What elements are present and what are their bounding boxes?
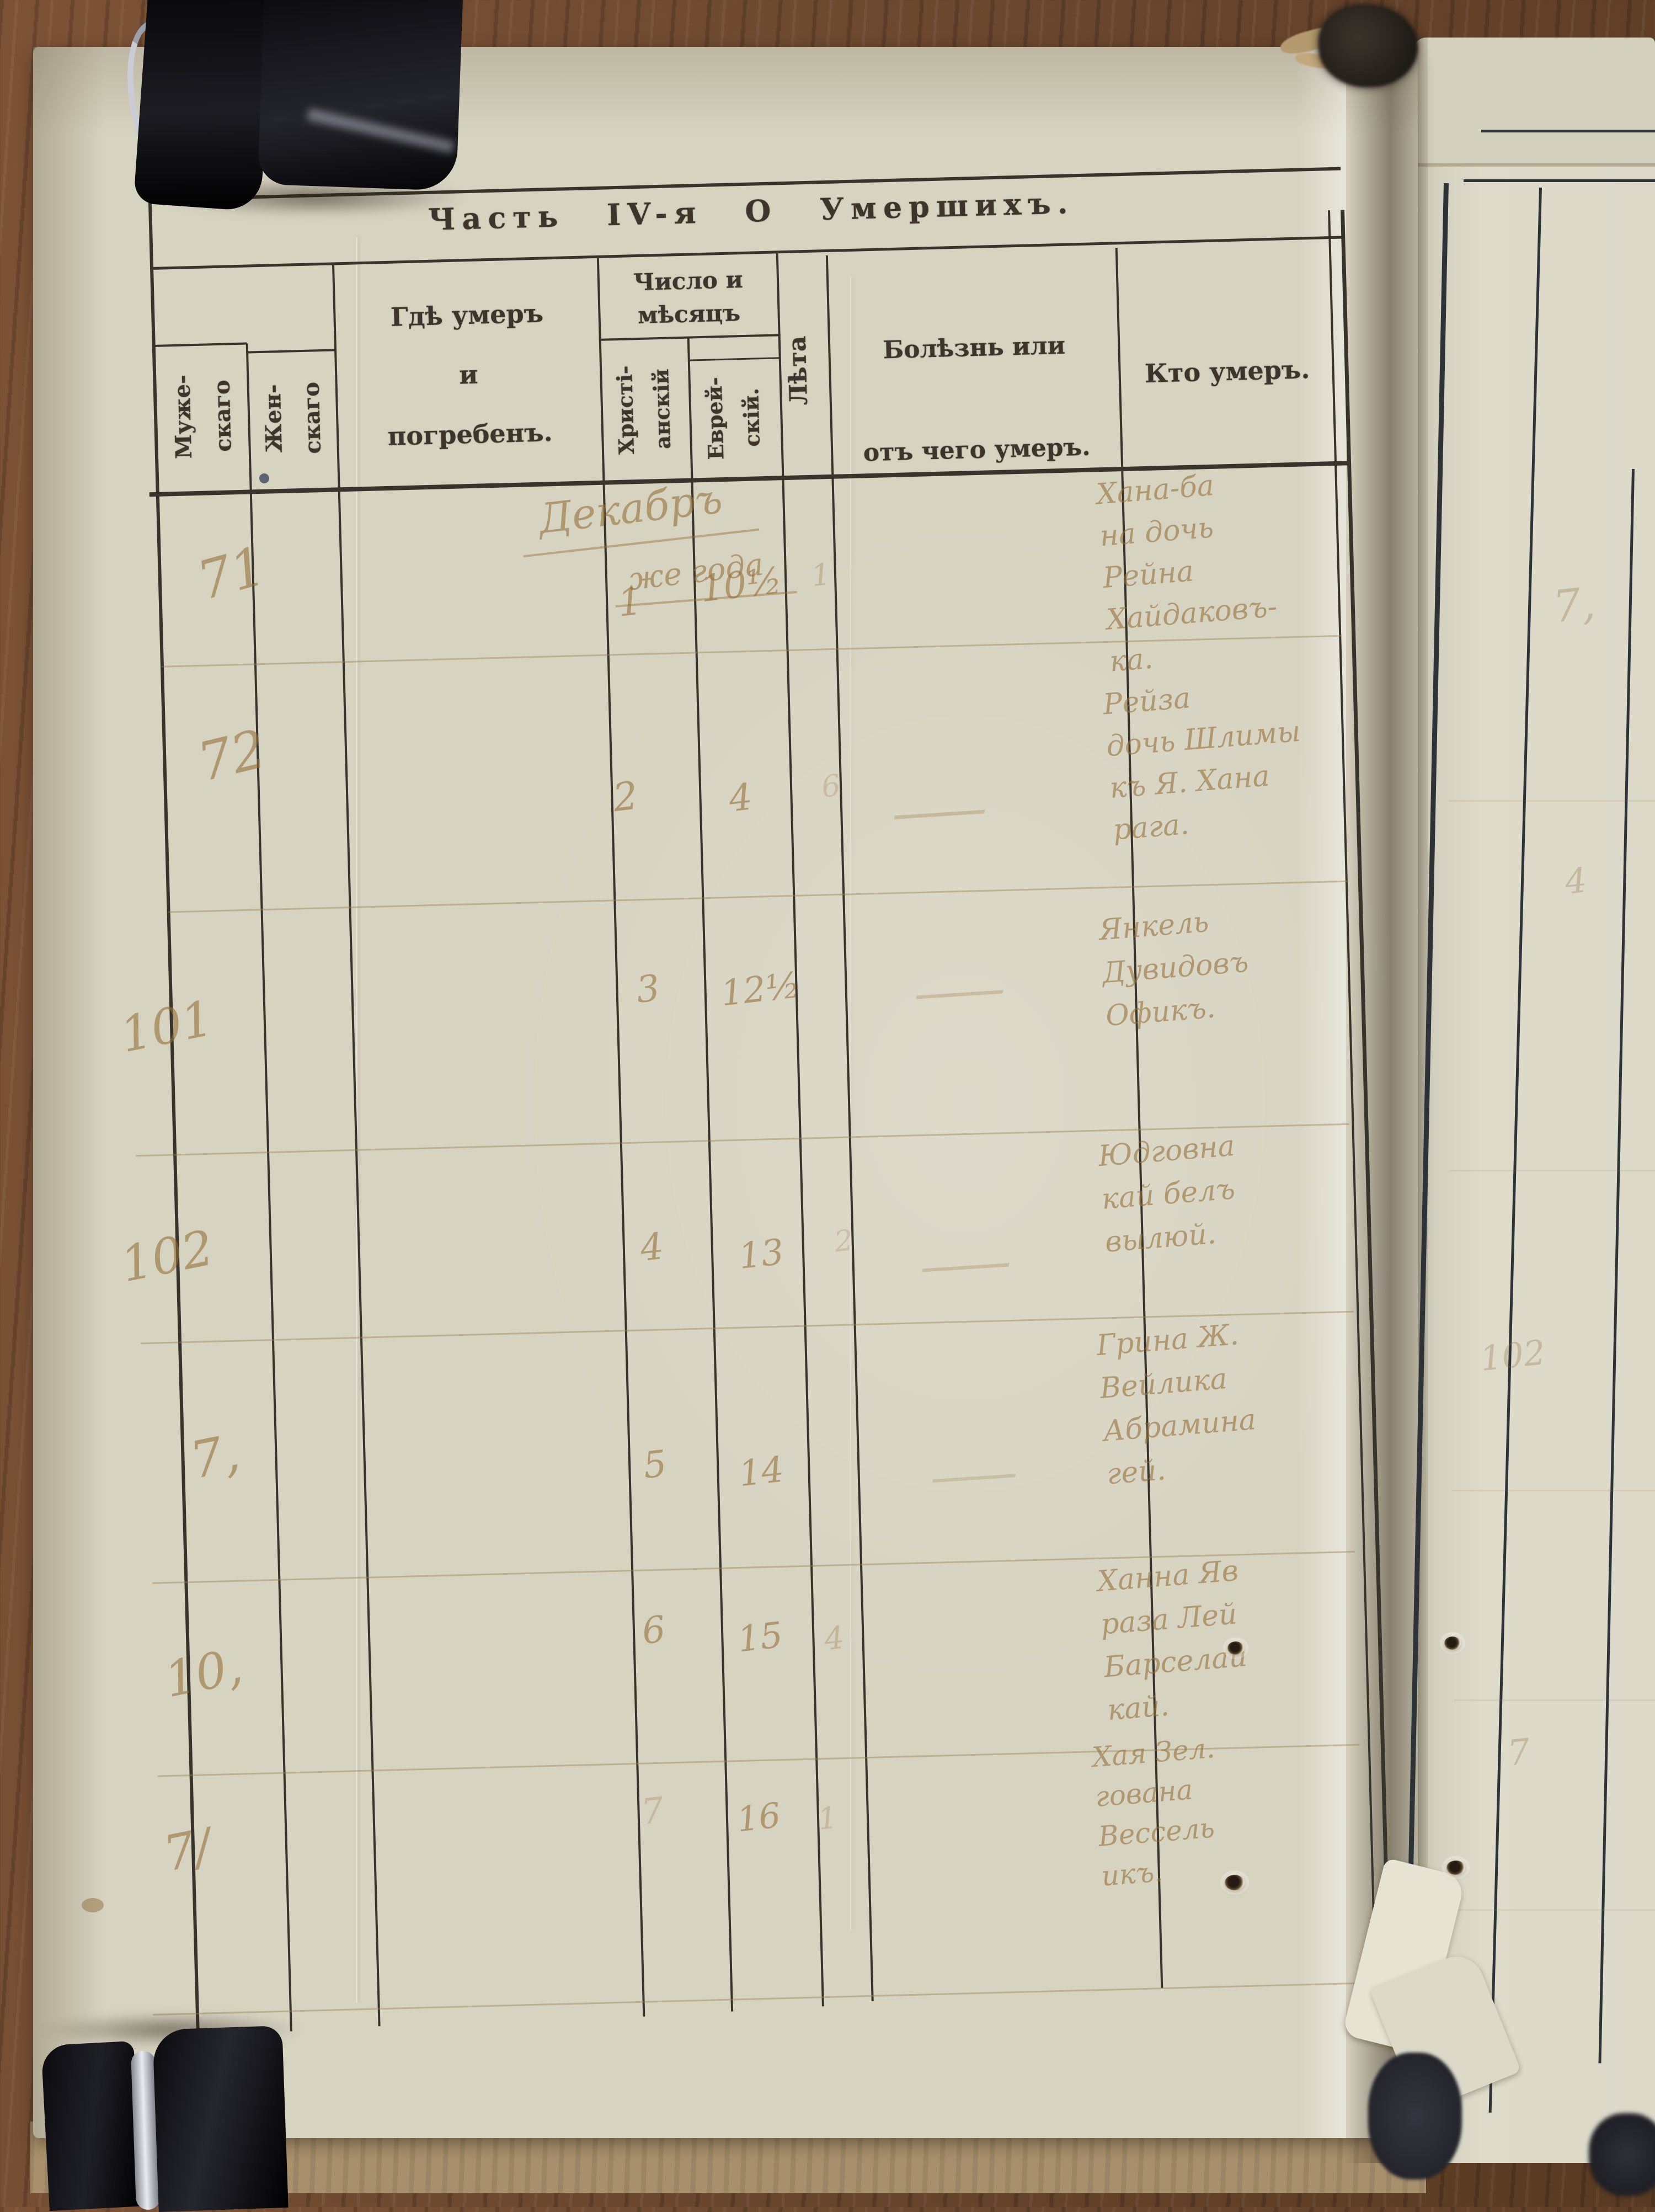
header-age: Лѣта <box>781 268 826 473</box>
table-bottom-rule <box>153 1982 1360 2016</box>
header-cause: Болѣзнь или отъ чего умеръ. <box>834 293 1118 504</box>
entry-r5-christian-day: 5 <box>641 1442 669 1487</box>
right-page-row-separator <box>1448 800 1655 802</box>
right-page-ghost-number: 7, <box>1550 577 1598 632</box>
clip-lobe <box>134 0 275 212</box>
column-line-jewish-age <box>776 252 824 2006</box>
right-page-row-separator <box>1456 1909 1655 1911</box>
wormhole <box>1227 1641 1244 1655</box>
right-page-ghost-number: 4 <box>1563 860 1589 902</box>
entry-r6-who: Ханна Яв раза Лей Барселай кай. <box>1096 1549 1252 1732</box>
entry-r6-male-number: 10, <box>160 1638 247 1709</box>
entry-r7-male-number: 7/ <box>159 1817 216 1883</box>
entry-r1-jewish-day: 10½ <box>698 559 784 610</box>
wormhole <box>1444 1637 1461 1650</box>
wormhole <box>1446 1861 1465 1875</box>
date-group-underline <box>599 334 781 341</box>
header-male: Муже- скаго <box>162 347 242 487</box>
entry-r7-christian-day: 7 <box>639 1790 666 1833</box>
entry-r3-cause-dash: — <box>907 957 1007 1024</box>
entry-r4-jewish-day: 13 <box>736 1232 786 1277</box>
entry-r6-christian-day: 6 <box>640 1608 668 1653</box>
entry-r7-who: Хая Зел. гована Вессель икъ. <box>1091 1728 1226 1896</box>
clip-prong <box>152 2026 288 2212</box>
right-page-header-rule <box>1481 130 1655 132</box>
entry-r1-who: Хана-ба на дочь Рейна Хайдаковъ- ка. <box>1095 460 1282 683</box>
right-page-column-line <box>1598 469 1635 2063</box>
right-page-column-line <box>1489 188 1542 2113</box>
entry-r2-female-number: 72 <box>192 718 272 793</box>
wormhole <box>1225 1875 1245 1890</box>
entry-r3-christian-day: 3 <box>634 967 661 1011</box>
header-female: Жен- скаго <box>253 353 331 484</box>
entry-r2-cause-dash: — <box>884 775 989 845</box>
entry-r1-female-number: 71 <box>191 535 273 612</box>
clip-lobe <box>258 0 463 191</box>
entry-r1-age: 1 <box>810 557 832 593</box>
jewish-col-top-rule <box>690 357 780 361</box>
header-jewish: Еврей- скій. <box>696 362 776 475</box>
table-ink-layer: Часть IV-я О Умершихъ. Муже- скаго Жен- … <box>30 42 1469 2169</box>
right-page-ghost-number: 102 <box>1478 1332 1547 1379</box>
clip-prong <box>41 2041 142 2211</box>
entry-r2-jewish-day: 4 <box>727 775 754 820</box>
entry-r2-who: Рейза дочь Шлимы къ Я. Хана рага. <box>1102 669 1309 851</box>
right-page-row-separator <box>1454 1699 1655 1701</box>
entry-r4-who: Юдговна кай белъ вылюй. <box>1097 1124 1243 1264</box>
entry-r4-christian-day: 4 <box>638 1225 666 1270</box>
entry-r6-jewish-day: 15 <box>735 1615 784 1661</box>
header-christian: Христі- анскій <box>606 342 684 476</box>
entry-r4-age: 2 <box>832 1224 855 1259</box>
entry-r5-jewish-day: 14 <box>737 1449 786 1495</box>
right-page-ghost-number: 7 <box>1505 1731 1532 1774</box>
entry-r6-age: 4 <box>823 1620 846 1658</box>
book-spine-fabric <box>1368 2053 1462 2179</box>
entry-r4-cause-dash: — <box>913 1230 1013 1297</box>
entry-r2-age: 6 <box>820 767 842 804</box>
entry-r2-christian-day: 2 <box>611 773 640 821</box>
photo-of-archival-register: { "page": { "title": "Часть IV-я О Умерш… <box>0 0 1655 2207</box>
entry-r7-age: 1 <box>816 1800 839 1836</box>
book-spine-fabric <box>1589 2113 1655 2196</box>
right-page-row-separator <box>1451 1490 1655 1491</box>
binding-cord-top-right <box>1280 0 1434 99</box>
cord-knot <box>1318 4 1418 87</box>
column-line-age-cause <box>826 255 874 2001</box>
entry-r1-christian-day: 1 <box>616 579 644 625</box>
entry-r4-male-number: 102 <box>116 1219 218 1293</box>
header-date-group: Число и мѣсяцъ <box>598 262 779 333</box>
entry-r7-jewish-day: 16 <box>735 1795 783 1840</box>
entry-r5-cause-dash: — <box>923 1442 1019 1507</box>
binder-clip-top-left <box>141 0 472 220</box>
entry-r3-male-number: 101 <box>115 989 217 1063</box>
entry-r3-jewish-day: 12½ <box>719 965 802 1015</box>
right-page-row-separator <box>1449 1170 1655 1171</box>
binder-clip-bottom-left <box>45 2028 310 2210</box>
table-right-border <box>1341 210 1391 1980</box>
header-where: Гдѣ умеръ и погребенъ. <box>337 282 600 467</box>
column-line-female-where <box>332 264 381 2026</box>
entry-r3-who: Янкель Дувидовъ Офикъ. <box>1097 898 1253 1038</box>
entry-r5-male-number: 7, <box>185 1423 244 1490</box>
header-who: Кто умеръ. <box>1122 354 1332 389</box>
right-page-header-rule <box>1464 179 1655 182</box>
table-right-border-inner <box>1328 210 1376 1978</box>
entry-r5-who: Грина Ж. Вейлика Абрамина гей. <box>1095 1313 1261 1496</box>
